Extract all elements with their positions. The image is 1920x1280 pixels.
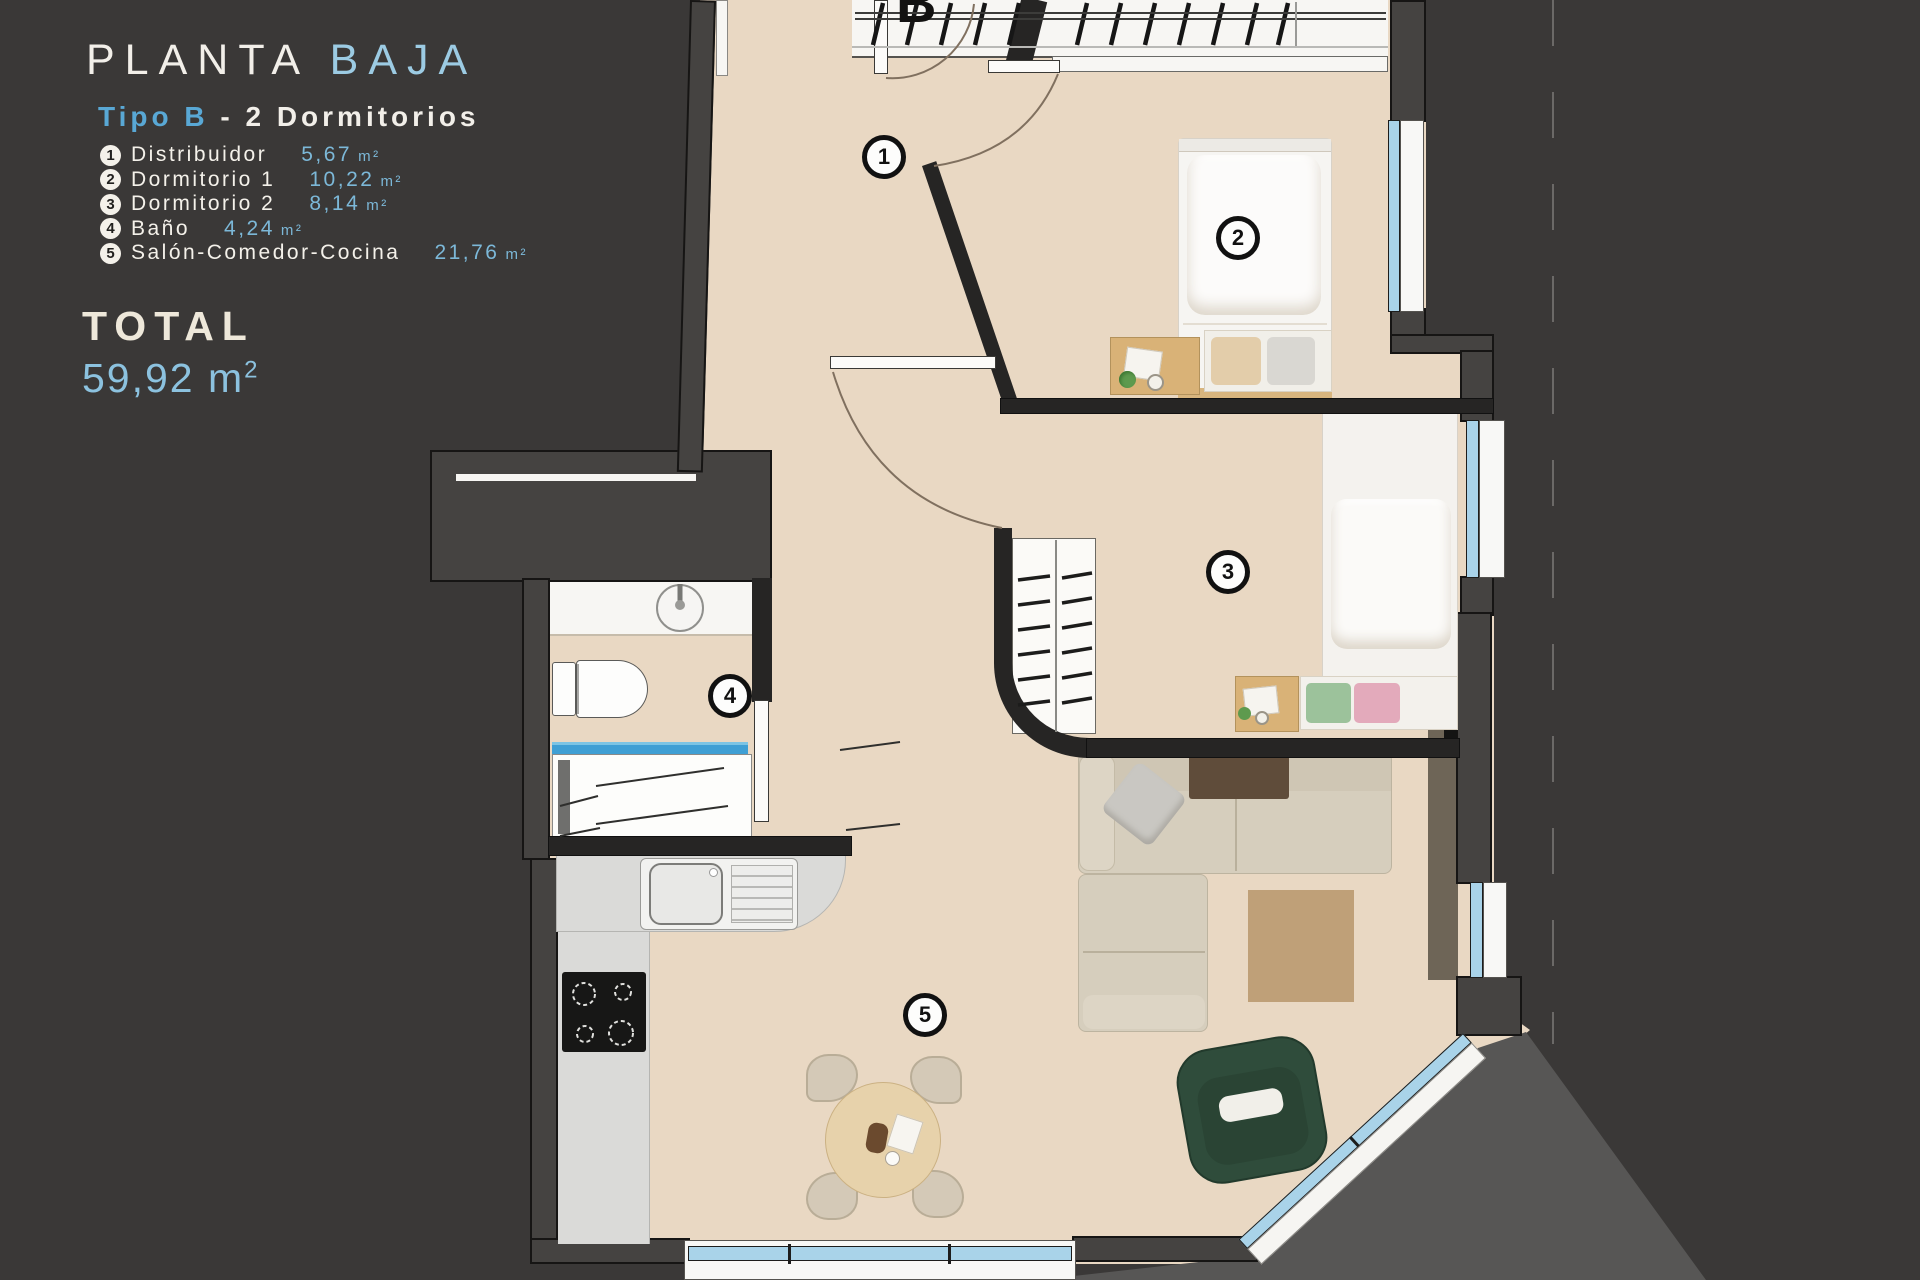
total-label: TOTAL (82, 303, 255, 350)
wall-bath-bottom (548, 836, 852, 856)
window-bottom (688, 1246, 1072, 1261)
window-living-right (1470, 882, 1483, 978)
wall-kitchen-left (530, 858, 558, 1250)
legend-room-area: 5,67 (301, 143, 352, 167)
wall-room3-right-lower (1460, 576, 1494, 616)
legend-row-bano: 4 Baño 4,24 m² (100, 217, 528, 242)
bath-counter (550, 582, 772, 636)
table-centerpiece (865, 1121, 890, 1154)
legend-number-badge: 4 (100, 218, 121, 239)
room-badge-distribuidor: 1 (862, 135, 906, 179)
legend-room-unit: m² (380, 173, 403, 190)
room2-door-leaf (988, 60, 1060, 73)
sofa-top-arm (1078, 752, 1392, 874)
armchair-green (1171, 1031, 1332, 1189)
room-badge-dormitorio-2: 3 (1206, 550, 1250, 594)
wall-bay-corner (1456, 976, 1522, 1036)
bench-cushion-gray (1267, 337, 1315, 385)
bed-single-foot (1300, 676, 1458, 730)
sofa-throw (1189, 753, 1289, 799)
legend-room-name: Salón-Comedor-Cocina (131, 241, 400, 265)
cushion-green (1306, 683, 1351, 723)
entrance-frame (716, 0, 728, 76)
room-badge-salon: 5 (903, 993, 947, 1037)
legend-room-unit: m² (366, 197, 389, 214)
bed-single (1322, 408, 1458, 680)
info-panel: PLANTA BAJA Tipo B - 2 Dormitorios 1 Dis… (0, 0, 430, 1280)
understair-wall (1052, 56, 1388, 72)
wall-room2-bottom (1000, 398, 1494, 414)
table-card (886, 1114, 923, 1155)
total-unit: m (208, 355, 244, 401)
table-cup (885, 1151, 900, 1166)
floorplan-page: { "panel": { "title_primary": "PLANTA", … (0, 0, 1920, 1280)
legend-room-unit: m² (506, 246, 529, 263)
legend-row-dormitorio-2: 3 Dormitorio 2 8,14 m² (100, 192, 528, 217)
bath-door-leaf (754, 700, 769, 822)
clock (1147, 374, 1164, 391)
legend-number-badge: 3 (100, 194, 121, 215)
title-secondary: BAJA (330, 36, 478, 84)
legend-room-name: Distribuidor (131, 143, 267, 167)
shower-glass (552, 742, 748, 754)
legend-number-badge: 2 (100, 169, 121, 190)
total-area: 59,92 (82, 355, 195, 401)
legend-room-area: 8,14 (309, 192, 360, 216)
subtitle-type: Tipo B (98, 101, 209, 132)
legend-row-distribuidor: 1 Distribuidor 5,67 m² (100, 143, 528, 168)
toilet (552, 660, 648, 718)
wall-bath-right (752, 578, 772, 702)
legend-room-name: Baño (131, 217, 190, 241)
sink-drainer (731, 865, 793, 923)
legend-room-name: Dormitorio 2 (131, 192, 275, 216)
entrance-door-leaf (874, 0, 888, 74)
legend-room-name: Dormitorio 1 (131, 168, 275, 192)
room-badge-bano: 4 (708, 674, 752, 718)
legend-room-area: 21,76 (434, 241, 499, 265)
wall-bath-left (522, 578, 550, 860)
legend-row-salon: 5 Salón-Comedor-Cocina 21,76 m² (100, 241, 528, 266)
shower-tray (552, 754, 752, 838)
window-room3-sill (1479, 420, 1505, 578)
total-unit-sup: 2 (244, 356, 259, 383)
entrance-label: B (896, 0, 936, 35)
plan-subtitle: Tipo B - 2 Dormitorios (98, 101, 480, 133)
sofa-left-arm (1078, 874, 1208, 1032)
kitchen-sink (640, 858, 798, 930)
background-seam-line (1552, 0, 1554, 1044)
total-value: 59,92 m2 (82, 355, 260, 402)
wall-bottom-right (1072, 1236, 1258, 1262)
dining-table (825, 1082, 941, 1198)
page-title: PLANTA BAJA (86, 36, 477, 85)
legend-row-dormitorio-1: 2 Dormitorio 1 10,22 m² (100, 168, 528, 193)
bed-headboard (1179, 139, 1331, 152)
window-room3 (1466, 420, 1479, 578)
room3-door-leaf (830, 356, 996, 369)
cooktop (562, 972, 646, 1052)
west-wall-slit (456, 474, 696, 481)
legend-room-area: 10,22 (309, 168, 374, 192)
legend-room-area: 4,24 (224, 217, 275, 241)
legend-number-badge: 1 (100, 145, 121, 166)
legend-number-badge: 5 (100, 243, 121, 264)
clock-small (1255, 711, 1269, 725)
sink-tap-dot (709, 868, 718, 877)
window-living-right-sill (1483, 882, 1507, 978)
legend-room-unit: m² (281, 222, 304, 239)
west-wall-mass (430, 450, 772, 582)
shower-handle (558, 760, 570, 834)
window-bottom-mullion-2 (948, 1244, 951, 1264)
shower (552, 742, 752, 838)
wall-living-north (1086, 738, 1460, 758)
plant-tiny (1238, 707, 1251, 720)
wall-right-top (1390, 0, 1426, 122)
wall-living-right (1456, 612, 1492, 884)
room-legend: 1 Distribuidor 5,67 m² 2 Dormitorio 1 10… (100, 143, 528, 266)
window-room2-sill (1400, 120, 1424, 312)
room-badge-dormitorio-1: 2 (1216, 216, 1260, 260)
cushion-pink (1354, 683, 1400, 723)
window-bottom-mullion-1 (788, 1244, 791, 1264)
legend-room-unit: m² (358, 148, 381, 165)
rug (1248, 890, 1354, 1002)
window-room2 (1388, 120, 1400, 312)
bed-bench (1204, 330, 1332, 392)
bench-cushion-beige (1211, 337, 1261, 385)
nightstand-room3 (1235, 676, 1299, 732)
title-primary: PLANTA (86, 36, 308, 84)
subtitle-rest: - 2 Dormitorios (220, 101, 479, 132)
bed-single-pillow (1331, 499, 1451, 649)
nightstand-room2 (1110, 337, 1200, 395)
plant-small (1119, 371, 1136, 388)
